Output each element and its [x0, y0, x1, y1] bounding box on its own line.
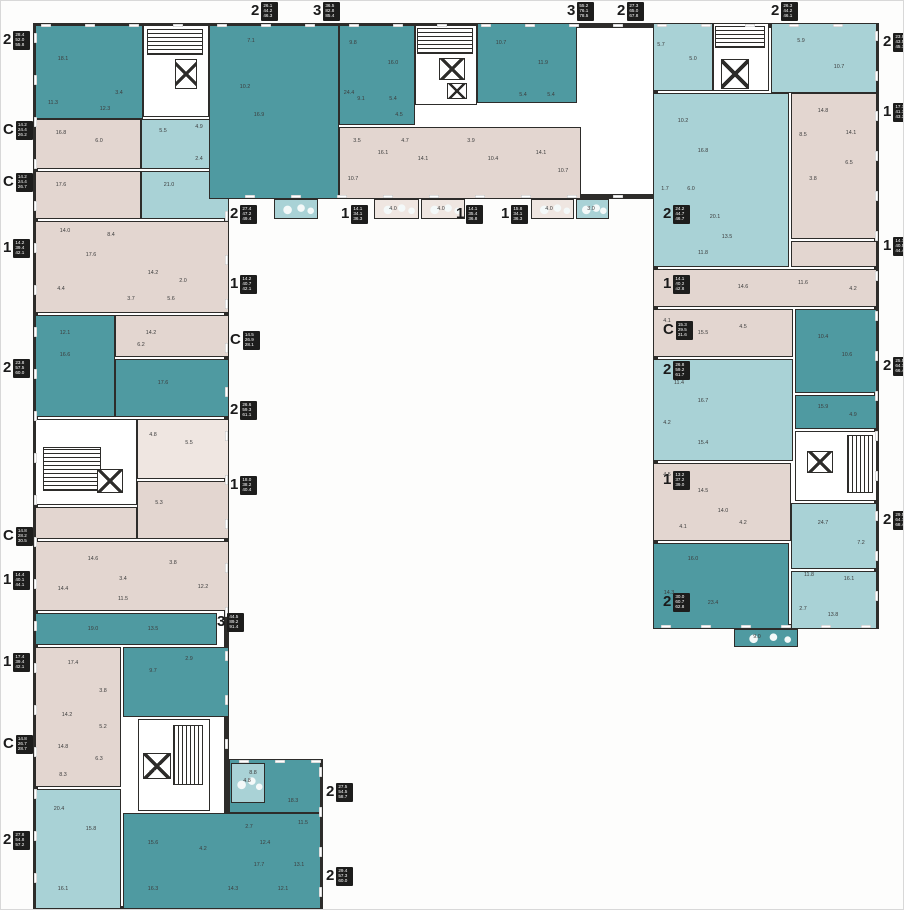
room-area-label: 4.0: [437, 206, 445, 211]
window-icon: [875, 471, 878, 481]
elevator-icon: [721, 59, 749, 89]
window-icon: [34, 579, 37, 589]
room-area-label: 14.2: [62, 712, 73, 717]
apartment-room[interactable]: [653, 93, 789, 267]
window-icon: [701, 625, 711, 628]
apartment-areas-chip: 26.659.361.1: [240, 401, 257, 420]
apartment-room[interactable]: [35, 171, 141, 219]
area-value: 61.7: [675, 373, 688, 378]
room-area-label: 6.0: [95, 138, 103, 143]
window-icon: [875, 271, 878, 281]
apartment-type-label: 2: [663, 361, 671, 378]
apartment-room[interactable]: [791, 241, 877, 267]
window-icon: [225, 387, 228, 397]
apartment-areas-chip: 25.564.766.4: [893, 357, 904, 376]
stairs-icon: [417, 28, 473, 54]
window-icon: [319, 887, 322, 897]
room-area-label: 9.0: [753, 634, 761, 639]
room-area-label: 3.0: [587, 206, 595, 211]
room-area-label: 4.1: [663, 318, 671, 323]
window-icon: [34, 453, 37, 463]
window-icon: [789, 24, 799, 27]
apartment-type-label: 1: [456, 205, 464, 222]
room-area-label: 4.8: [149, 432, 157, 437]
room-area-label: 10.7: [834, 64, 845, 69]
apartment-room[interactable]: [795, 309, 877, 393]
area-value: 68.4: [895, 523, 904, 528]
room-area-label: 3.4: [115, 90, 123, 95]
area-value: 67.8: [629, 14, 642, 19]
room-area-label: 16.1: [58, 886, 69, 891]
room-area-label: 13.5: [722, 234, 733, 239]
window-icon: [225, 651, 228, 661]
room-area-label: 2.0: [179, 278, 187, 283]
room-area-label: 4.5: [395, 112, 403, 117]
window-icon: [311, 760, 321, 763]
area-value: 61.1: [242, 413, 255, 418]
apartment-badge[interactable]: 355.276.178.5: [567, 2, 594, 21]
room-area-label: 14.6: [738, 284, 749, 289]
apartment-badge[interactable]: C14.828.230.5: [3, 527, 33, 546]
area-value: 58.7: [338, 795, 351, 800]
apartment-room[interactable]: [35, 119, 141, 169]
window-icon: [319, 767, 322, 777]
apartment-areas-chip: 27.447.249.4: [240, 205, 257, 224]
room-area-label: 17.4: [68, 660, 79, 665]
apartment-type-label: 1: [501, 205, 509, 222]
room-area-label: 17.7: [254, 862, 265, 867]
apartment-type-label: 1: [230, 275, 238, 292]
apartment-type-label: 2: [883, 511, 891, 528]
area-value: 46.3: [263, 14, 276, 19]
window-icon: [34, 747, 37, 757]
room-area-label: 11.9: [538, 60, 548, 65]
room-area-label: 13.1: [294, 862, 305, 867]
stairs-icon: [147, 29, 203, 55]
apartment-areas-chip: 17.439.442.1: [13, 653, 30, 672]
room-area-label: 4.5: [663, 472, 671, 477]
window-icon: [225, 299, 228, 309]
elevator-icon: [97, 469, 123, 493]
apartment-room[interactable]: [653, 23, 713, 91]
room-area-label: 6.5: [845, 160, 853, 165]
room-area-label: 16.0: [688, 556, 699, 561]
apartment-areas-chip: 27.365.067.8: [627, 2, 644, 21]
window-icon: [821, 625, 831, 628]
apartment-room[interactable]: [771, 23, 877, 93]
room-area-label: 2.9: [185, 656, 193, 661]
apartment-type-label: 2: [3, 831, 11, 848]
area-value: 43.3: [895, 115, 904, 120]
window-icon: [34, 705, 37, 715]
apartment-areas-chip: 29.457.360.0: [336, 867, 353, 886]
apartment-badge[interactable]: 226.144.246.3: [251, 2, 278, 21]
apartment-type-label: 2: [883, 33, 891, 50]
window-icon: [34, 117, 37, 127]
room-area-label: 11.3: [48, 100, 58, 105]
apartment-type-label: 1: [883, 103, 891, 120]
apartment-room[interactable]: [209, 25, 339, 199]
apartment-badge[interactable]: 117.141.143.3: [883, 103, 904, 122]
apartment-type-label: 2: [230, 205, 238, 222]
room-area-label: 3.7: [127, 296, 135, 301]
apartment-room[interactable]: [791, 503, 877, 569]
apartment-type-label: C: [3, 121, 14, 138]
apartment-room[interactable]: [35, 647, 121, 787]
window-icon: [305, 24, 315, 27]
window-icon: [34, 243, 37, 253]
balcony[interactable]: [274, 199, 318, 219]
window-icon: [291, 195, 301, 198]
apartment-badge[interactable]: C14.526.928.1: [230, 331, 260, 350]
apartment-badge[interactable]: 227.554.558.7: [326, 783, 353, 802]
room-area-label: 8.4: [107, 232, 115, 237]
room-area-label: 12.3: [100, 106, 111, 111]
window-icon: [393, 24, 403, 27]
apartment-room[interactable]: [653, 543, 789, 629]
window-icon: [225, 211, 228, 221]
apartment-room[interactable]: [115, 315, 229, 357]
apartment-badge[interactable]: 226.859.261.7: [663, 361, 690, 380]
apartment-badge[interactable]: 114.740.544.4: [883, 237, 904, 256]
apartment-type-label: 1: [3, 571, 11, 588]
apartment-areas-chip: 27.554.558.7: [336, 783, 353, 802]
apartment-room[interactable]: [795, 395, 877, 429]
apartment-type-label: 3: [217, 613, 225, 630]
room-area-label: 5.0: [689, 56, 697, 61]
apartment-badge[interactable]: 344.589.291.4: [217, 613, 244, 632]
room-area-label: 12.1: [60, 330, 71, 335]
apartment-areas-chip: 23.943.545.1: [893, 33, 904, 52]
apartment-badge[interactable]: 226.344.246.1: [771, 2, 798, 21]
window-icon: [875, 111, 878, 121]
area-value: 57.2: [15, 843, 28, 848]
room-area-label: 4.2: [739, 520, 747, 525]
area-value: 31.6: [678, 333, 691, 338]
apartment-areas-chip: 18.038.240.4: [240, 476, 257, 495]
apartment-room[interactable]: [35, 315, 115, 417]
apartment-badge[interactable]: 114.134.136.3: [341, 205, 368, 224]
area-value: 30.5: [18, 539, 31, 544]
apartment-badge[interactable]: C14.826.728.7: [3, 735, 33, 754]
room-area-label: 14.2: [148, 270, 159, 275]
apartment-room[interactable]: [35, 613, 217, 645]
area-value: 26.7: [18, 185, 31, 190]
window-icon: [34, 327, 37, 337]
apartment-badge[interactable]: 230.060.762.8: [663, 593, 690, 612]
room-area-label: 14.1: [418, 156, 429, 161]
apartment-areas-chip: 24.244.746.7: [673, 205, 690, 224]
apartment-room[interactable]: [123, 813, 321, 909]
room-area-label: 14.0: [718, 508, 729, 513]
apartment-areas-chip: 13.237.239.0: [673, 471, 690, 490]
room-area-label: 11.5: [298, 820, 308, 825]
area-value: 44.4: [895, 249, 904, 254]
room-area-label: 3.5: [353, 138, 361, 143]
apartment-badge[interactable]: 227.447.249.4: [230, 205, 257, 224]
room-area-label: 4.2: [663, 420, 671, 425]
room-area-label: 15.5: [698, 330, 709, 335]
apartment-areas-chip: 26.344.246.1: [781, 2, 798, 21]
apartment-badge[interactable]: 229.564.768.4: [883, 511, 904, 530]
area-value: 55.8: [15, 43, 28, 48]
balcony[interactable]: [734, 629, 798, 647]
room-area-label: 11.8: [804, 572, 814, 577]
room-area-label: 18.1: [58, 56, 69, 61]
room-area-label: 11.8: [698, 250, 708, 255]
window-icon: [85, 24, 95, 27]
area-value: 85.4: [325, 14, 338, 19]
room-area-label: 12.2: [198, 584, 209, 589]
apartment-room[interactable]: [123, 647, 229, 717]
window-icon: [781, 625, 791, 628]
apartment-badge[interactable]: 114.240.742.1: [230, 275, 257, 294]
area-value: 36.3: [353, 217, 366, 222]
apartment-type-label: 2: [663, 205, 671, 222]
apartment-type-label: 1: [3, 239, 11, 256]
room-area-label: 14.2: [146, 330, 157, 335]
apartment-type-label: C: [230, 331, 241, 348]
room-area-label: 6.0: [687, 186, 695, 191]
area-value: 66.4: [895, 369, 904, 374]
window-icon: [875, 351, 878, 361]
apartment-areas-chip: 36.582.885.4: [323, 2, 340, 21]
room-area-label: 3.4: [119, 576, 127, 581]
room-area-label: 4.9: [849, 412, 857, 417]
window-icon: [173, 24, 183, 27]
apartment-badge[interactable]: 227.854.857.2: [3, 831, 30, 850]
room-area-label: 5.3: [155, 500, 163, 505]
room-area-label: 4.4: [57, 286, 65, 291]
area-value: 39.0: [675, 483, 688, 488]
apartment-badge[interactable]: 225.564.766.4: [883, 357, 904, 376]
window-icon: [245, 195, 255, 198]
room-area-label: 7.1: [247, 38, 255, 43]
window-icon: [319, 807, 322, 817]
room-area-label: 17.6: [158, 380, 169, 385]
window-icon: [875, 431, 878, 441]
apartment-areas-chip: 27.854.857.2: [13, 831, 30, 850]
apartment-badge[interactable]: 114.135.436.8: [456, 205, 483, 224]
apartment-room[interactable]: [35, 789, 121, 909]
window-icon: [34, 159, 37, 169]
apartment-badge[interactable]: C15.329.531.6: [663, 321, 693, 340]
room-area-label: 4.7: [401, 138, 409, 143]
window-icon: [34, 831, 37, 841]
apartment-areas-chip: 14.740.544.4: [893, 237, 904, 256]
window-icon: [481, 24, 491, 27]
room-area-label: 5.2: [99, 724, 107, 729]
window-icon: [225, 519, 228, 529]
apartment-type-label: 2: [883, 357, 891, 374]
apartment-badge[interactable]: 226.659.361.1: [230, 401, 257, 420]
apartment-badge[interactable]: 228.452.055.8: [3, 31, 30, 50]
apartment-room[interactable]: [339, 127, 581, 199]
apartment-type-label: 1: [883, 237, 891, 254]
window-icon: [34, 537, 37, 547]
room-area-label: 3.8: [99, 688, 107, 693]
apartment-type-label: 3: [313, 2, 321, 19]
apartment-type-label: 2: [617, 2, 625, 19]
window-icon: [129, 24, 139, 27]
area-value: 46.7: [675, 217, 688, 222]
apartment-type-label: 1: [3, 653, 11, 670]
apartment-badge[interactable]: 229.457.360.0: [326, 867, 353, 886]
room-area-label: 14.3: [228, 886, 239, 891]
area-value: 46.1: [783, 14, 796, 19]
room-area-label: 3.9: [467, 138, 475, 143]
apartment-areas-chip: 26.144.246.3: [261, 2, 278, 21]
window-icon: [225, 343, 228, 353]
apartment-type-label: C: [3, 527, 14, 544]
apartment-type-label: 2: [251, 2, 259, 19]
room-area-label: 21.0: [164, 182, 175, 187]
elevator-icon: [447, 83, 467, 99]
stairs-icon: [173, 725, 203, 785]
apartment-badge[interactable]: 114.440.144.1: [3, 571, 30, 590]
window-icon: [875, 31, 878, 41]
window-icon: [875, 591, 878, 601]
window-icon: [741, 625, 751, 628]
apartment-badge[interactable]: 114.239.442.1: [3, 239, 30, 258]
apartment-type-label: 2: [230, 401, 238, 418]
room-area-label: 6.3: [95, 756, 103, 761]
window-icon: [875, 231, 878, 241]
apartment-room[interactable]: [35, 541, 229, 611]
room-area-label: 13.8: [828, 612, 839, 617]
apartment-badge[interactable]: 223.943.545.1: [883, 33, 904, 52]
window-icon: [875, 191, 878, 201]
room-area-label: 16.9: [254, 112, 265, 117]
room-area-label: 2.7: [245, 824, 253, 829]
apartment-areas-chip: 14.828.230.5: [16, 527, 33, 546]
window-icon: [34, 495, 37, 505]
window-icon: [34, 663, 37, 673]
room-area-label: 15.6: [148, 840, 159, 845]
stairs-icon: [847, 435, 873, 493]
room-area-label: 19.0: [88, 626, 99, 631]
apartment-areas-chip: 23.857.560.0: [13, 359, 30, 378]
room-area-label: 4.2: [199, 846, 207, 851]
room-area-label: 12.1: [278, 886, 289, 891]
room-area-label: 4.1: [679, 524, 687, 529]
apartment-badge[interactable]: 224.244.746.7: [663, 205, 690, 224]
window-icon: [225, 431, 228, 441]
floor-plan-canvas: 228.452.055.8C14.224.426.2C14.224.426.71…: [0, 0, 904, 910]
apartment-areas-chip: 14.134.136.3: [351, 205, 368, 224]
area-value: 91.4: [229, 625, 242, 630]
room-area-label: 2.7: [799, 606, 807, 611]
apartment-room[interactable]: [35, 507, 137, 539]
room-area-label: 16.3: [148, 886, 159, 891]
apartment-room[interactable]: [791, 571, 877, 629]
apartment-type-label: 2: [771, 2, 779, 19]
apartment-badge[interactable]: 115.834.136.3: [501, 205, 528, 224]
window-icon: [34, 75, 37, 85]
room-area-label: 15.9: [818, 404, 829, 409]
apartment-areas-chip: 15.329.531.6: [676, 321, 693, 340]
area-value: 28.1: [245, 343, 258, 348]
stairs-icon: [43, 447, 101, 491]
room-area-label: 5.9: [797, 38, 805, 43]
apartment-badge[interactable]: 118.038.240.4: [230, 476, 257, 495]
apartment-areas-chip: 14.135.436.8: [466, 205, 483, 224]
apartment-room[interactable]: [477, 23, 577, 103]
window-icon: [34, 201, 37, 211]
room-area-label: 14.1: [846, 130, 857, 135]
window-icon: [383, 195, 393, 198]
apartment-badge[interactable]: 223.857.560.0: [3, 359, 30, 378]
apartment-room[interactable]: [137, 481, 229, 539]
room-area-label: 4.9: [195, 124, 203, 129]
area-value: 60.0: [338, 879, 351, 884]
room-area-label: 8.8: [249, 770, 257, 775]
apartment-room[interactable]: [115, 359, 229, 417]
area-value: 62.8: [675, 605, 688, 610]
apartment-areas-chip: 55.276.178.5: [577, 2, 594, 21]
window-icon: [225, 475, 228, 485]
window-icon: [613, 195, 623, 198]
room-area-label: 1.7: [661, 186, 669, 191]
room-area-label: 11.4: [674, 380, 684, 385]
area-value: 44.1: [15, 583, 28, 588]
apartment-badge[interactable]: C14.224.426.2: [3, 121, 33, 140]
apartment-type-label: 2: [326, 783, 334, 800]
room-area-label: 16.1: [378, 150, 389, 155]
room-area-label: 11.6: [798, 280, 808, 285]
apartment-badge[interactable]: C14.224.426.7: [3, 173, 33, 192]
apartment-type-label: 2: [326, 867, 334, 884]
apartment-room[interactable]: [137, 419, 229, 479]
room-area-label: 10.6: [842, 352, 853, 357]
room-area-label: 5.4: [547, 92, 555, 97]
window-icon: [701, 24, 711, 27]
window-icon: [349, 24, 359, 27]
window-icon: [217, 24, 227, 27]
area-value: 40.4: [242, 488, 255, 493]
window-icon: [225, 739, 228, 749]
room-area-label: 20.4: [54, 806, 65, 811]
window-icon: [225, 563, 228, 573]
room-area-label: 14.3: [664, 590, 675, 595]
room-area-label: 10.2: [678, 118, 689, 123]
area-value: 45.1: [895, 45, 904, 50]
room-area-label: 11.5: [118, 596, 128, 601]
apartment-type-label: 1: [230, 476, 238, 493]
apartment-badge[interactable]: 227.365.067.8: [617, 2, 644, 21]
window-icon: [521, 195, 531, 198]
room-area-label: 4.0: [545, 206, 553, 211]
apartment-room[interactable]: [791, 93, 877, 239]
window-icon: [225, 695, 228, 705]
apartment-badge[interactable]: 117.439.442.1: [3, 653, 30, 672]
apartment-type-label: 1: [663, 275, 671, 292]
apartment-areas-chip: 17.141.143.3: [893, 103, 904, 122]
window-icon: [745, 24, 755, 27]
apartment-badge[interactable]: 336.582.885.4: [313, 2, 340, 21]
window-icon: [34, 411, 37, 421]
window-icon: [569, 24, 579, 27]
apartment-areas-chip: 14.440.144.1: [13, 571, 30, 590]
room-area-label: 6.2: [137, 342, 145, 347]
room-area-label: 16.1: [844, 576, 855, 581]
room-area-label: 16.0: [388, 60, 399, 65]
room-area-label: 4.8: [243, 778, 251, 783]
room-area-label: 17.6: [86, 252, 97, 257]
room-area-label: 10.7: [496, 40, 507, 45]
stairs-icon: [715, 26, 765, 48]
room-area-label: 9.7: [149, 668, 157, 673]
